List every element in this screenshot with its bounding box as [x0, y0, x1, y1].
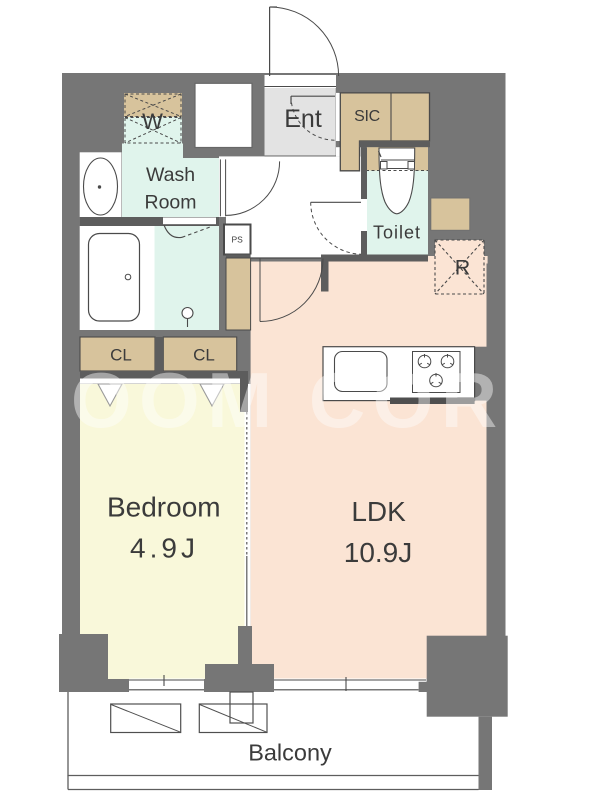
svg-text:W: W [142, 109, 163, 134]
svg-text:Room: Room [144, 192, 196, 214]
svg-text:Toilet: Toilet [373, 223, 421, 243]
svg-text:ROOM CORE: ROOM CORE [7, 356, 564, 444]
svg-text:Balcony: Balcony [248, 740, 332, 766]
svg-text:PS: PS [232, 235, 244, 245]
svg-text:LDK: LDK [351, 496, 406, 527]
svg-text:R: R [455, 256, 471, 280]
svg-text:Bedroom: Bedroom [107, 492, 221, 523]
svg-text:SIC: SIC [354, 108, 380, 125]
svg-text:4.9J: 4.9J [130, 533, 199, 564]
svg-text:10.9J: 10.9J [344, 537, 413, 568]
svg-text:Wash: Wash [146, 164, 195, 186]
svg-text:Ent: Ent [284, 105, 322, 133]
